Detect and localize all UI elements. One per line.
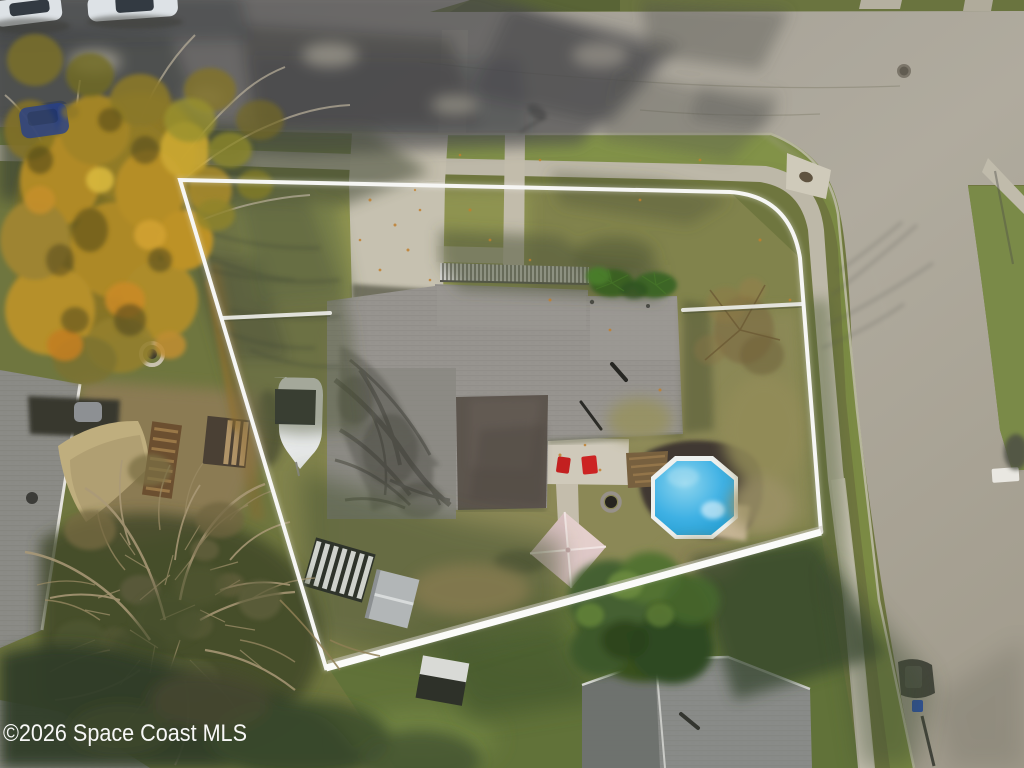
svg-text:©2026 Space Coast MLS: ©2026 Space Coast MLS — [3, 719, 247, 746]
